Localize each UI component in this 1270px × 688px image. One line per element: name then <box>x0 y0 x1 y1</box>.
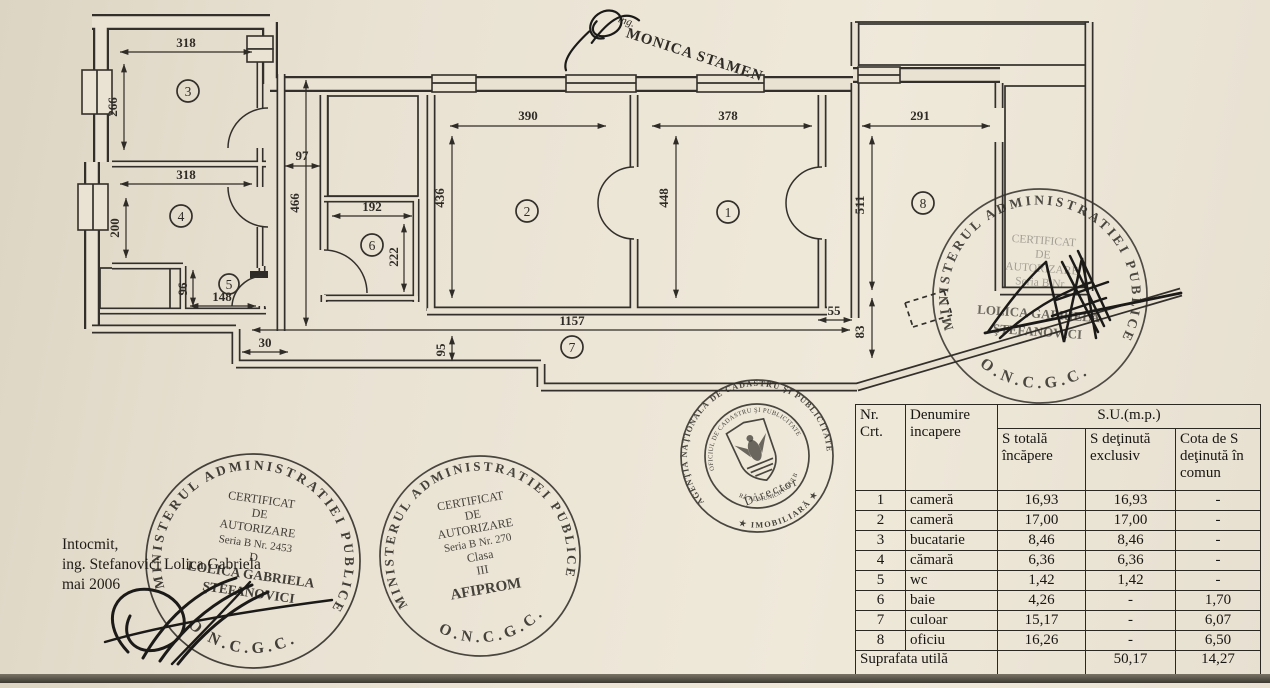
cell-name: baie <box>906 591 998 611</box>
room-label-6: 6 <box>361 234 383 256</box>
dim-label: 1157 <box>559 313 585 328</box>
author-note: Intocmit, ing. Stefanovici Lolica Gabrie… <box>62 535 261 594</box>
dim-label: 55 <box>828 303 842 318</box>
room-label-4: 4 <box>170 205 192 227</box>
cell-name: cămară <box>906 551 998 571</box>
table-row: 7 culoar 15,17 - 6,07 <box>856 611 1261 631</box>
cell-name: oficiu <box>906 631 998 651</box>
footer-label: Suprafata utilă <box>856 651 998 677</box>
room-label-3: 3 <box>177 80 199 102</box>
cell-excl: 8,46 <box>1086 531 1176 551</box>
dim-label: 466 <box>287 193 302 213</box>
col-header-total: S totală încăpere <box>998 429 1086 491</box>
dim-label: 200 <box>107 218 122 238</box>
cell-nr: 3 <box>856 531 906 551</box>
table-row: 2 cameră 17,00 17,00 - <box>856 511 1261 531</box>
stamp-line: CERTIFICAT <box>1011 233 1076 249</box>
svg-text:6: 6 <box>369 238 376 253</box>
hatched-area-top-right <box>857 24 1087 65</box>
cell-total: 16,26 <box>998 631 1086 651</box>
eagle-emblem <box>725 415 785 487</box>
dim-label: 266 <box>105 97 120 117</box>
svg-text:5: 5 <box>226 277 233 292</box>
cell-total: 15,17 <box>998 611 1086 631</box>
seal-director: Director <box>742 474 801 509</box>
cell-cota: - <box>1176 511 1261 531</box>
cell-total: 6,36 <box>998 551 1086 571</box>
cell-total: 4,26 <box>998 591 1086 611</box>
windows <box>78 36 900 230</box>
dim-label: 95 <box>433 343 448 357</box>
stamp-org: AFIPROM <box>449 575 522 603</box>
afiprom-stamp: MINISTERUL ADMINISTRATIEI PUBLICE O.N.C.… <box>364 440 596 672</box>
col-header-su: S.U.(m.p.) <box>998 405 1261 429</box>
table-row: 5 wc 1,42 1,42 - <box>856 571 1261 591</box>
cell-nr: 2 <box>856 511 906 531</box>
dim-label: 30 <box>259 335 272 350</box>
dim-label: 97 <box>296 148 310 163</box>
room-label-5: 5 <box>219 274 239 294</box>
svg-text:O.N.C.G.C.: O.N.C.G.C. <box>975 354 1093 396</box>
oncgc-text: O.N.C.G.C. <box>434 602 552 655</box>
seal-ring-top: AGENŢIA NAŢIONALĂ DE CADASTRU ŞI PUBLICI… <box>657 356 838 508</box>
stamp-line: III <box>475 562 489 578</box>
svg-text:3: 3 <box>185 84 192 99</box>
stamp-line: DE <box>1035 249 1051 262</box>
cell-total: 8,46 <box>998 531 1086 551</box>
cell-name: bucatarie <box>906 531 998 551</box>
cell-excl: 6,36 <box>1086 551 1176 571</box>
cell-nr: 5 <box>856 571 906 591</box>
room-area-table: Nr. Crt. Denumire incapere S.U.(m.p.) S … <box>855 404 1261 677</box>
dim-label: 83 <box>852 325 867 339</box>
note-line: Intocmit, <box>62 535 261 555</box>
cell-name: cameră <box>906 511 998 531</box>
table-row: 4 cămară 6,36 6,36 - <box>856 551 1261 571</box>
col-header-nr: Nr. Crt. <box>856 405 906 491</box>
table-row: 6 baie 4,26 - 1,70 <box>856 591 1261 611</box>
cell-name: wc <box>906 571 998 591</box>
room-label-8: 8 <box>912 192 934 214</box>
cell-nr: 7 <box>856 611 906 631</box>
col-header-exclusiv: S deţinută exclusiv <box>1086 429 1176 491</box>
cell-name: cameră <box>906 491 998 511</box>
note-line: ing. Stefanovici Lolica Gabriela <box>62 555 261 575</box>
hatched-area-bottom-left <box>100 268 170 310</box>
dim-label: 511 <box>852 196 867 215</box>
cell-cota: - <box>1176 491 1261 511</box>
cell-cota: 6,50 <box>1176 631 1261 651</box>
dim-label: 448 <box>656 188 671 208</box>
col-header-cota: Cota de S deţinută în comun <box>1176 429 1261 491</box>
cell-excl: 16,93 <box>1086 491 1176 511</box>
svg-text:AGENŢIA NAŢIONALĂ DE CADASTRU: AGENŢIA NAŢIONALĂ DE CADASTRU ŞI PUBLICI… <box>657 356 838 508</box>
table-row: 1 cameră 16,93 16,93 - <box>856 491 1261 511</box>
dim-label: 222 <box>386 247 401 267</box>
footer-total <box>998 651 1086 677</box>
svg-text:4: 4 <box>178 209 185 224</box>
dim-label: 192 <box>362 199 382 214</box>
cell-excl: 17,00 <box>1086 511 1176 531</box>
cell-cota: 1,70 <box>1176 591 1261 611</box>
footer-excl: 50,17 <box>1086 651 1176 677</box>
hatched-area-vestibule <box>328 96 418 196</box>
cell-total: 1,42 <box>998 571 1086 591</box>
table-footer-row: Suprafata utilă 50,17 14,27 <box>856 651 1261 677</box>
cell-excl: 1,42 <box>1086 571 1176 591</box>
cell-excl: - <box>1086 631 1176 651</box>
cell-cota: - <box>1176 531 1261 551</box>
svg-text:2: 2 <box>524 204 531 219</box>
cell-excl: - <box>1086 591 1176 611</box>
cell-nr: 6 <box>856 591 906 611</box>
dim-label: 436 <box>432 188 447 208</box>
cell-total: 16,93 <box>998 491 1086 511</box>
svg-text:7: 7 <box>569 340 576 355</box>
note-line: mai 2006 <box>62 575 261 595</box>
dim-label: 318 <box>176 167 196 182</box>
cell-nr: 4 <box>856 551 906 571</box>
cell-excl: - <box>1086 611 1176 631</box>
dim-label: 390 <box>518 108 538 123</box>
room-label-1: 1 <box>717 201 739 223</box>
table-row: 8 oficiu 16,26 - 6,50 <box>856 631 1261 651</box>
stamp-line: DE <box>251 505 269 521</box>
dim-label: 378 <box>718 108 738 123</box>
footer-cota: 14,27 <box>1176 651 1261 677</box>
cell-name: culoar <box>906 611 998 631</box>
cell-nr: 8 <box>856 631 906 651</box>
signature-top <box>563 1 639 87</box>
oncgc-text: O.N.C.G.C. <box>975 354 1093 396</box>
svg-text:O.N.C.G.C.: O.N.C.G.C. <box>434 602 552 655</box>
cell-cota: 6,07 <box>1176 611 1261 631</box>
dim-label: 318 <box>176 35 196 50</box>
dim-label: 291 <box>910 108 930 123</box>
photo-edge-strip <box>0 674 1270 683</box>
room-label-7: 7 <box>561 336 583 358</box>
room-label-2: 2 <box>516 200 538 222</box>
table-row: 3 bucatarie 8,46 8,46 - <box>856 531 1261 551</box>
cell-cota: - <box>1176 551 1261 571</box>
col-header-name: Denumire incapere <box>906 405 998 491</box>
cell-cota: - <box>1176 571 1261 591</box>
svg-text:1: 1 <box>725 205 732 220</box>
cell-total: 17,00 <box>998 511 1086 531</box>
dim-label: 96 <box>175 282 190 296</box>
cell-nr: 1 <box>856 491 906 511</box>
svg-text:8: 8 <box>920 196 927 211</box>
ministry-stamp-right: MINISTERUL ADMINISTRATIEI PUBLICE O.N.C.… <box>926 182 1154 410</box>
